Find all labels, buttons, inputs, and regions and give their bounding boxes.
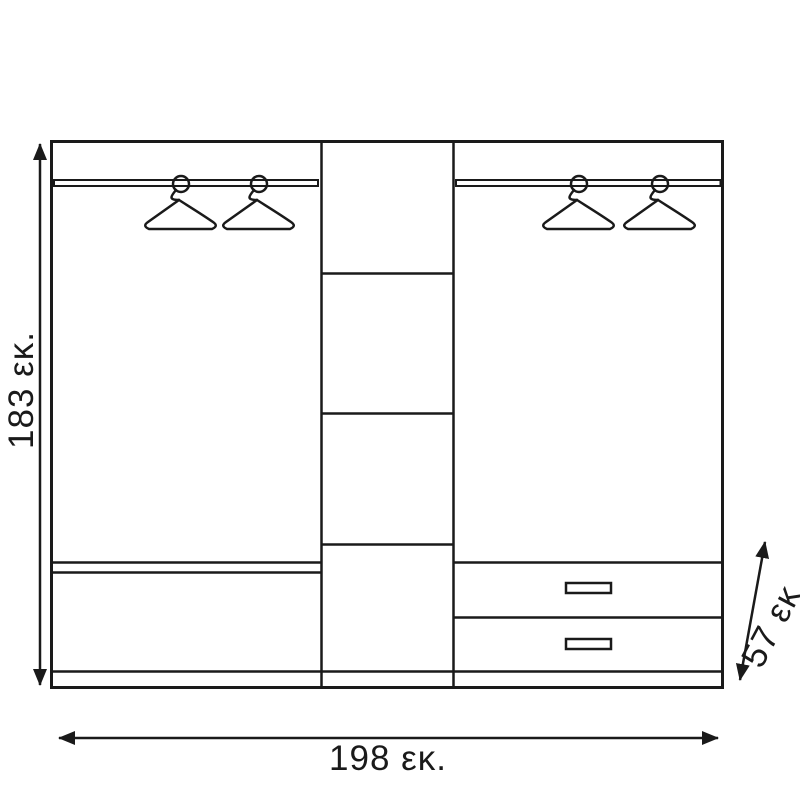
- clothes-rail-left: [54, 180, 318, 186]
- wardrobe-diagram: 183 εκ. 198 εκ. 57 εκ.: [0, 0, 800, 800]
- left-compartment: [52, 176, 322, 573]
- drawer: [454, 618, 723, 650]
- height-dimension-label: 183 εκ.: [2, 331, 41, 449]
- middle-shelves: [322, 274, 454, 545]
- drawer-handle-icon: [566, 639, 611, 649]
- wardrobe-diagram-page: 183 εκ. 198 εκ. 57 εκ.: [0, 0, 800, 800]
- depth-dimension-label: 57 εκ.: [734, 569, 800, 673]
- drawer-handle-icon: [566, 583, 611, 593]
- right-compartment: [454, 176, 723, 649]
- clothes-rail-right: [456, 180, 721, 186]
- width-dimension-label: 198 εκ.: [329, 739, 447, 778]
- drawer: [454, 563, 723, 594]
